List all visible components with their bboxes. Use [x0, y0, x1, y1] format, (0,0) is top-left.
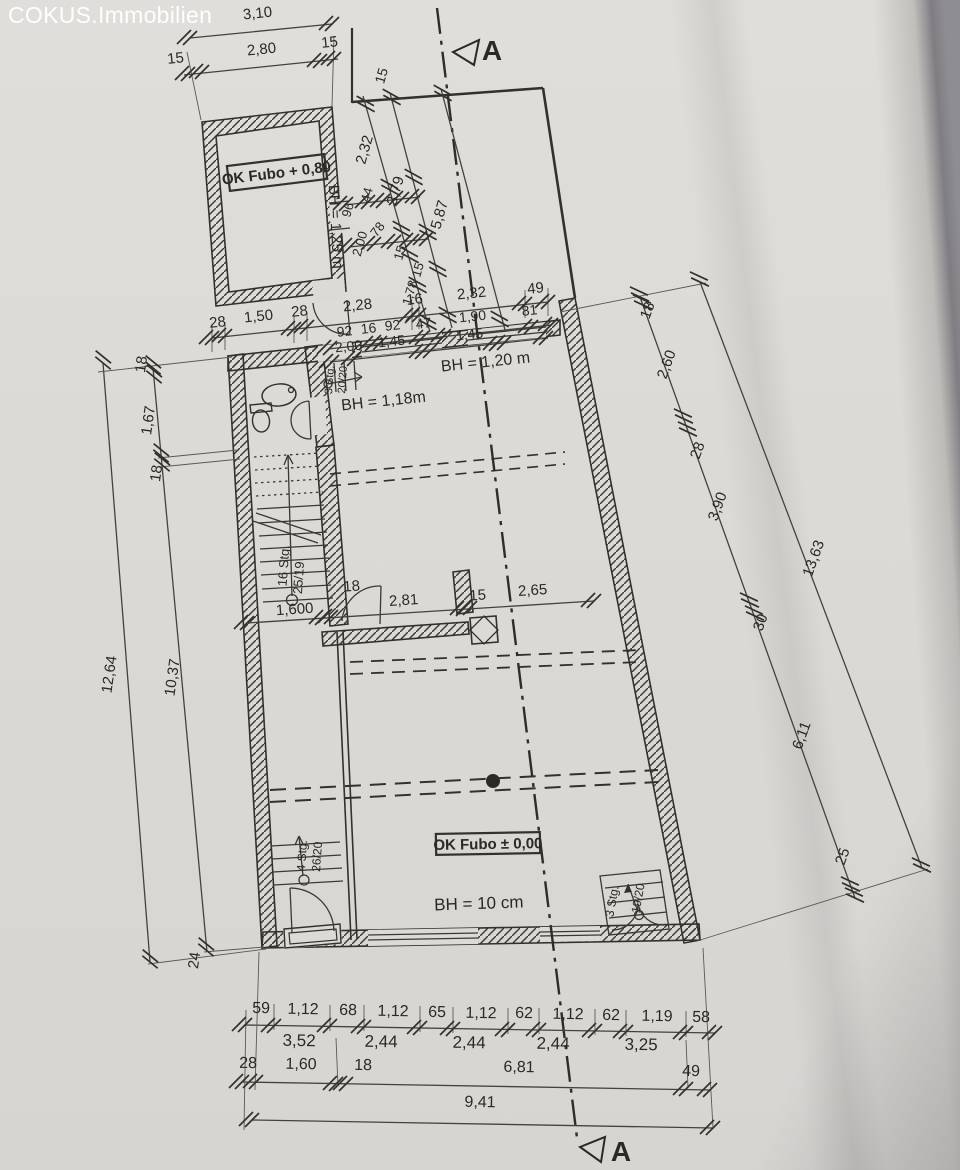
- dim-label: 28: [239, 1055, 257, 1072]
- stair-label-entry: 3 Stg.: [602, 885, 621, 918]
- upper-court-outline: [352, 28, 575, 298]
- dim-label: 1,12: [552, 1006, 584, 1024]
- dim-label: 28: [290, 302, 308, 321]
- dim-label: 1,12: [287, 1001, 319, 1019]
- dim-label: 1,90: [458, 307, 487, 326]
- dim-label: 2,65: [518, 581, 548, 600]
- dim-label: 62: [515, 1005, 533, 1022]
- dim-label: 1,45: [455, 325, 484, 344]
- dim-label: 1,67: [138, 405, 159, 436]
- dim-label: 49: [682, 1063, 700, 1080]
- dim-label: 1,50: [243, 307, 274, 327]
- dim-label: 3,10: [242, 4, 273, 24]
- dim-label: 15: [166, 49, 184, 68]
- dim-label: 2,81: [389, 591, 419, 610]
- dim-label: 18: [354, 1057, 372, 1074]
- dim-label: 68: [339, 1002, 357, 1019]
- bh-label-annex: BH = 1,25 m: [325, 184, 346, 269]
- dim-label: 1,19: [641, 1008, 673, 1026]
- dim-label: 1,600: [275, 600, 314, 620]
- dim-label: 16: [405, 290, 423, 309]
- dim-label: 2,28: [342, 296, 373, 316]
- dim-label: 13,63: [799, 538, 828, 579]
- stair-label-main-ratio: 25/19: [290, 561, 307, 595]
- dim-label: 16: [360, 319, 377, 337]
- dim-label: 2,00: [334, 337, 363, 356]
- dim-label: 15: [408, 261, 426, 279]
- dim-label: 6,81: [503, 1059, 535, 1077]
- dim-label: 1,12: [377, 1003, 409, 1021]
- dim-label: 1,60: [285, 1056, 317, 1074]
- dim-label: 62: [602, 1007, 620, 1024]
- stair-label-cellar-ratio: 26/20: [309, 841, 325, 872]
- dim-label: 44: [357, 186, 375, 204]
- bh-label-window-left: BH = 1,18m: [340, 389, 426, 415]
- dim-label: 3,90: [705, 490, 731, 523]
- dim-label: 9,41: [464, 1094, 496, 1112]
- dim-label: 2,32: [456, 284, 487, 304]
- dim-label: 25: [832, 846, 854, 867]
- dim-label: 10,37: [162, 658, 184, 698]
- stair-label-main: 16 Stg.: [275, 545, 293, 587]
- dim-label: 28: [208, 313, 226, 332]
- dim-label: 18: [343, 577, 361, 595]
- walls: [202, 107, 700, 948]
- watermark: COKUS.Immobilien: [8, 2, 212, 29]
- dim-label: 28: [687, 440, 709, 461]
- bh-label-ground: BH = 10 cm: [434, 892, 524, 914]
- dim-label: 59: [252, 1000, 270, 1017]
- section-letter-bottom: A: [611, 1136, 631, 1167]
- stair-label-upper-ratio: 20/20: [336, 366, 350, 394]
- dim-label: 15: [469, 586, 487, 604]
- stair-label-cellar: 4 Stg.: [294, 840, 310, 872]
- floorplan-drawing: 3,10152,8015152,323,795,874496782,001515…: [0, 0, 960, 1170]
- section-marker-bottom: [580, 1137, 605, 1162]
- dim-label: 2,44: [452, 1033, 485, 1053]
- dim-label: 5,87: [427, 198, 451, 231]
- dim-label: 24: [185, 951, 204, 970]
- dim-label: 1,12: [465, 1005, 497, 1023]
- washbasin-tap: [289, 388, 294, 393]
- dim-label: 3,52: [282, 1031, 315, 1051]
- dim-label: 1,45: [377, 332, 406, 351]
- dim-label: 3,25: [624, 1035, 657, 1055]
- dim-label: 78: [367, 219, 388, 240]
- column: [470, 616, 498, 644]
- floor-level-label-ground: OK Fubo ± 0,00: [433, 835, 542, 854]
- bh-label-window-right: BH = 1,20 m: [440, 349, 531, 375]
- section-marker-top: [453, 40, 479, 65]
- post-dot: [486, 774, 500, 788]
- floor-label-boxes: [227, 154, 540, 855]
- dim-label: 2,44: [536, 1034, 569, 1054]
- dim-label: 2,44: [364, 1032, 397, 1052]
- section-letter-top: A: [482, 35, 502, 66]
- dim-label: 2,60: [654, 348, 680, 381]
- dim-label: 18: [147, 464, 166, 483]
- stair-label-entry-ratio: 19/20: [629, 882, 648, 914]
- dim-label: 92: [384, 316, 401, 334]
- dim-label: 15: [371, 66, 391, 86]
- extension-lines: [98, 36, 928, 1130]
- dim-label: 2,32: [352, 133, 376, 166]
- stair-label-upper: 3 Stg.: [323, 365, 337, 395]
- dim-label: 81: [521, 301, 538, 319]
- dim-label: 49: [526, 279, 544, 298]
- dim-label: 65: [428, 1004, 446, 1021]
- dim-label: 58: [692, 1009, 710, 1026]
- dim-label: 2,80: [246, 40, 277, 60]
- dim-label: 47: [415, 314, 432, 332]
- dim-label: 15: [320, 33, 338, 52]
- dim-label: 18: [132, 355, 151, 374]
- dim-label: 12,64: [99, 655, 121, 695]
- floorplan-scan: 3,10152,8015152,323,795,874496782,001515…: [0, 0, 960, 1170]
- dimension-chains: [103, 24, 922, 1128]
- dim-label: 2,00: [349, 230, 370, 258]
